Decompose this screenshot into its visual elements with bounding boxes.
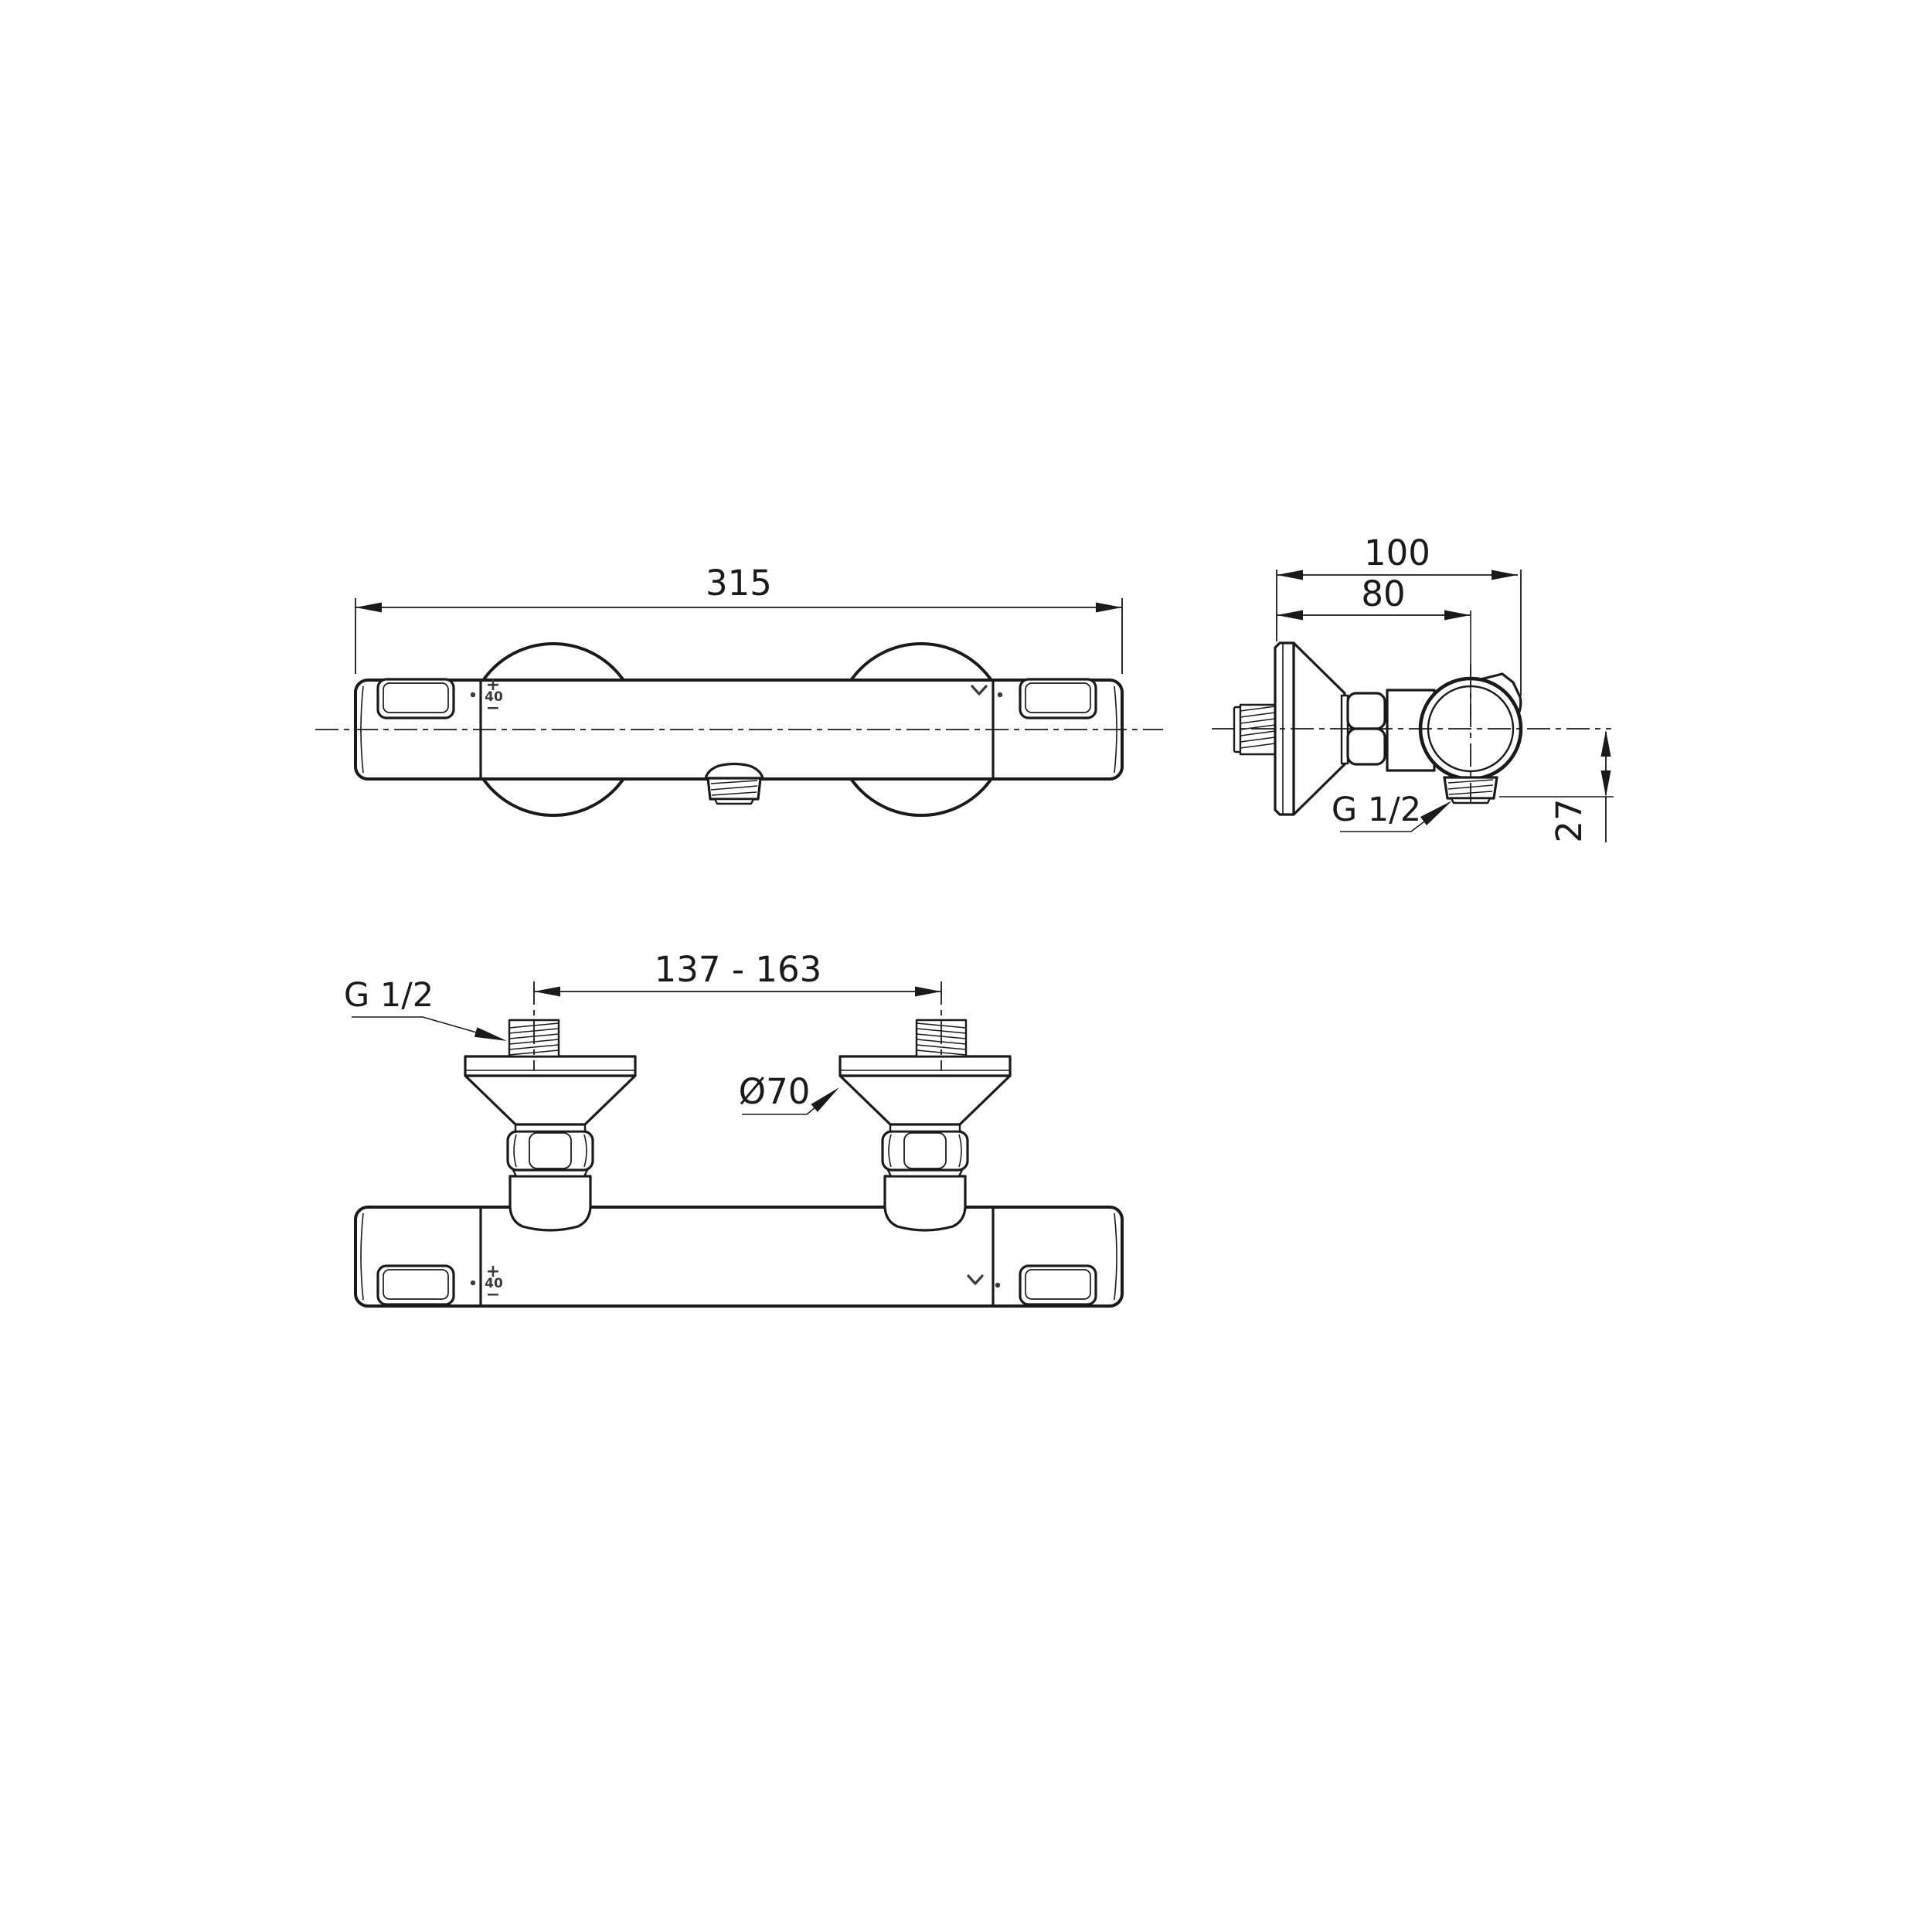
dim-27-label: 27 — [1549, 798, 1590, 842]
inlet-thread-label: G 1/2 — [344, 976, 434, 1015]
top-view: + 40 − 137 - 163 G 1/2 Ø70 — [344, 949, 1122, 1306]
flow-handle-grip — [1020, 679, 1096, 718]
index-dot — [995, 1283, 1000, 1287]
dim-315: 315 — [355, 563, 1122, 674]
index-dot — [471, 692, 475, 697]
escutcheon-diameter-callout: Ø70 — [739, 1071, 839, 1114]
temperature-handle-grip — [378, 679, 454, 718]
minus-mark: − — [486, 1285, 500, 1304]
union-nut-lower — [1348, 729, 1385, 764]
index-dot — [998, 692, 1002, 697]
leader-arrow — [1420, 801, 1452, 825]
dim-spacing-label: 137 - 163 — [655, 949, 822, 990]
escutcheon-diameter-label: Ø70 — [739, 1071, 811, 1112]
outlet-thread-callout: G 1/2 — [1332, 791, 1452, 832]
left-inlet-union — [465, 981, 635, 1230]
dim-315-label: 315 — [706, 563, 772, 604]
minus-mark: − — [486, 699, 500, 718]
front-view: + 40 − 315 — [315, 563, 1163, 815]
leader-arrow — [811, 1087, 840, 1112]
outlet-thread-label: G 1/2 — [1332, 791, 1421, 829]
mixer-bar-body — [355, 1207, 1122, 1306]
right-inlet-union — [840, 981, 1010, 1230]
leader-arrow — [474, 1027, 507, 1041]
thermostatic-shower-mixer-technical-drawing: + 40 − 315 — [0, 0, 1932, 1932]
temperature-handle-grip — [378, 1266, 454, 1304]
index-dot — [471, 1281, 475, 1285]
hose-outlet — [706, 764, 763, 804]
dim-inlet-spacing: 137 - 163 — [534, 949, 941, 997]
side-view: 100 80 27 G 1/2 — [1212, 532, 1614, 843]
dim-100-label: 100 — [1364, 532, 1430, 573]
dim-80-label: 80 — [1361, 573, 1405, 614]
union-nut-upper — [1348, 693, 1385, 729]
flow-handle-grip — [1020, 1266, 1096, 1304]
inlet-thread-callout: G 1/2 — [344, 976, 507, 1041]
